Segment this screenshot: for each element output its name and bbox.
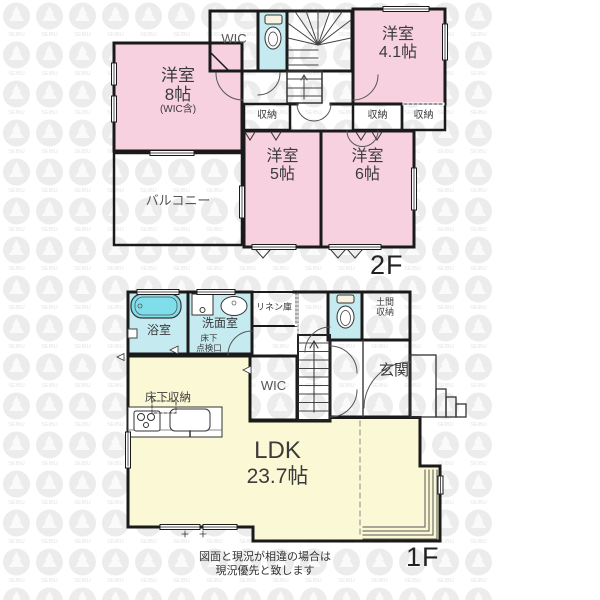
- watermark-logo: SEIBU: [462, 0, 495, 39]
- svg-text:SEIBU: SEIBU: [437, 578, 454, 584]
- watermark-logo: SEIBU: [462, 234, 495, 273]
- watermark-logo: SEIBU: [462, 585, 495, 600]
- watermark-logo: SEIBU: [330, 585, 363, 600]
- watermark-logo: SEIBU: [66, 351, 99, 390]
- watermark-logo: SEIBU: [462, 156, 495, 195]
- svg-text:SEIBU: SEIBU: [470, 110, 487, 116]
- wic-2f-label: WIC: [210, 32, 258, 47]
- closet-left-label: 収納: [244, 110, 290, 121]
- svg-text:SEIBU: SEIBU: [74, 344, 91, 350]
- watermark-logo: SEIBU: [0, 507, 33, 546]
- room-8jo-label: 洋室 8帖 (WIC含): [133, 66, 223, 115]
- svg-text:SEIBU: SEIBU: [74, 383, 91, 389]
- svg-text:SEIBU: SEIBU: [404, 266, 421, 272]
- svg-text:SEIBU: SEIBU: [8, 305, 25, 311]
- svg-text:SEIBU: SEIBU: [41, 344, 58, 350]
- watermark-logo: SEIBU: [0, 273, 33, 312]
- svg-text:SEIBU: SEIBU: [338, 266, 355, 272]
- svg-text:SEIBU: SEIBU: [8, 32, 25, 38]
- room-4-1jo-label: 洋室 4.1帖: [355, 26, 441, 62]
- watermark-logo: SEIBU: [66, 468, 99, 507]
- watermark-logo: SEIBU: [0, 0, 33, 39]
- svg-text:SEIBU: SEIBU: [8, 422, 25, 428]
- kitchen-counter: [128, 407, 222, 437]
- svg-text:SEIBU: SEIBU: [8, 578, 25, 584]
- wic-1f-label: WIC: [250, 379, 297, 394]
- svg-text:SEIBU: SEIBU: [74, 188, 91, 194]
- svg-text:SEIBU: SEIBU: [41, 461, 58, 467]
- watermark-logo: SEIBU: [132, 585, 165, 600]
- svg-text:SEIBU: SEIBU: [74, 71, 91, 77]
- stove-icon: [134, 411, 160, 431]
- floor-plan-1f: [110, 280, 475, 552]
- svg-text:SEIBU: SEIBU: [239, 266, 256, 272]
- watermark-logo: SEIBU: [0, 585, 33, 600]
- watermark-logo: SEIBU: [33, 585, 66, 600]
- watermark-logo: SEIBU: [66, 390, 99, 429]
- watermark-logo: SEIBU: [33, 312, 66, 351]
- svg-text:SEIBU: SEIBU: [74, 227, 91, 233]
- floor-2f-label: 2F: [370, 250, 404, 281]
- watermark-logo: SEIBU: [33, 351, 66, 390]
- svg-text:SEIBU: SEIBU: [41, 266, 58, 272]
- watermark-logo: SEIBU: [198, 585, 231, 600]
- svg-text:SEIBU: SEIBU: [41, 305, 58, 311]
- watermark-logo: SEIBU: [33, 78, 66, 117]
- svg-text:SEIBU: SEIBU: [272, 578, 289, 584]
- watermark-logo: SEIBU: [33, 273, 66, 312]
- svg-text:SEIBU: SEIBU: [74, 32, 91, 38]
- svg-text:SEIBU: SEIBU: [173, 266, 190, 272]
- svg-text:SEIBU: SEIBU: [140, 266, 157, 272]
- toilet-icon-1f: [337, 295, 354, 328]
- floorplan-image: SEIBUSEIBUSEIBUSEIBUSEIBUSEIBUSEIBUSEIBU…: [0, 0, 600, 600]
- watermark-logo: SEIBU: [33, 0, 66, 39]
- svg-text:SEIBU: SEIBU: [8, 110, 25, 116]
- watermark-logo: SEIBU: [396, 585, 429, 600]
- watermark-logo: SEIBU: [66, 195, 99, 234]
- watermark-logo: SEIBU: [99, 585, 132, 600]
- svg-text:SEIBU: SEIBU: [338, 578, 355, 584]
- watermark-logo: SEIBU: [0, 234, 33, 273]
- watermark-logo: SEIBU: [0, 195, 33, 234]
- watermark-logo: SEIBU: [66, 312, 99, 351]
- svg-text:SEIBU: SEIBU: [41, 110, 58, 116]
- svg-text:SEIBU: SEIBU: [470, 149, 487, 155]
- svg-text:SEIBU: SEIBU: [272, 266, 289, 272]
- svg-text:SEIBU: SEIBU: [305, 266, 322, 272]
- watermark-logo: SEIBU: [33, 156, 66, 195]
- watermark-logo: SEIBU: [66, 117, 99, 156]
- svg-text:SEIBU: SEIBU: [8, 500, 25, 506]
- watermark-logo: SEIBU: [66, 507, 99, 546]
- watermark-logo: SEIBU: [0, 156, 33, 195]
- room-5jo-label: 洋室 5帖: [244, 148, 321, 184]
- svg-text:SEIBU: SEIBU: [74, 266, 91, 272]
- svg-text:SEIBU: SEIBU: [470, 578, 487, 584]
- svg-text:SEIBU: SEIBU: [8, 149, 25, 155]
- watermark-logo: SEIBU: [66, 273, 99, 312]
- svg-text:SEIBU: SEIBU: [239, 578, 256, 584]
- balcony-label: バルコニー: [123, 194, 233, 209]
- svg-text:SEIBU: SEIBU: [8, 266, 25, 272]
- stair-treads-1f: [299, 341, 329, 412]
- watermark-logo: SEIBU: [33, 546, 66, 585]
- svg-text:SEIBU: SEIBU: [305, 578, 322, 584]
- svg-text:SEIBU: SEIBU: [8, 344, 25, 350]
- window-ticks: [182, 531, 206, 537]
- svg-text:SEIBU: SEIBU: [404, 578, 421, 584]
- entrance-label: 玄関: [364, 363, 424, 380]
- svg-text:SEIBU: SEIBU: [41, 149, 58, 155]
- watermark-logo: SEIBU: [66, 39, 99, 78]
- watermark-logo: SEIBU: [66, 546, 99, 585]
- closet-mid-label: 収納: [353, 110, 402, 121]
- watermark-logo: SEIBU: [0, 546, 33, 585]
- watermark-logo: SEIBU: [66, 585, 99, 600]
- svg-text:SEIBU: SEIBU: [74, 422, 91, 428]
- svg-text:SEIBU: SEIBU: [470, 188, 487, 194]
- bath-label: 浴室: [133, 324, 185, 337]
- watermark-logo: SEIBU: [165, 585, 198, 600]
- svg-text:SEIBU: SEIBU: [74, 461, 91, 467]
- basin-icon: [221, 297, 247, 316]
- svg-text:SEIBU: SEIBU: [470, 266, 487, 272]
- watermark-logo: SEIBU: [33, 468, 66, 507]
- svg-text:SEIBU: SEIBU: [41, 71, 58, 77]
- svg-text:SEIBU: SEIBU: [8, 188, 25, 194]
- watermark-logo: SEIBU: [0, 429, 33, 468]
- svg-text:SEIBU: SEIBU: [41, 578, 58, 584]
- svg-text:SEIBU: SEIBU: [206, 578, 223, 584]
- watermark-logo: SEIBU: [33, 507, 66, 546]
- watermark-logo: SEIBU: [0, 468, 33, 507]
- watermark-logo: SEIBU: [462, 78, 495, 117]
- svg-text:SEIBU: SEIBU: [74, 305, 91, 311]
- svg-text:SEIBU: SEIBU: [470, 32, 487, 38]
- toilet-icon-2f: [265, 15, 282, 49]
- watermark-logo: SEIBU: [297, 585, 330, 600]
- watermark-logo: SEIBU: [0, 39, 33, 78]
- watermark-logo: SEIBU: [462, 39, 495, 78]
- watermark-logo: SEIBU: [0, 78, 33, 117]
- watermark-logo: SEIBU: [462, 195, 495, 234]
- watermark-logo: SEIBU: [0, 312, 33, 351]
- watermark-logo: SEIBU: [33, 390, 66, 429]
- watermark-logo: SEIBU: [429, 585, 462, 600]
- svg-text:SEIBU: SEIBU: [470, 227, 487, 233]
- svg-text:SEIBU: SEIBU: [41, 32, 58, 38]
- svg-text:SEIBU: SEIBU: [437, 266, 454, 272]
- closet-right-label: 収納: [402, 110, 445, 121]
- svg-text:SEIBU: SEIBU: [206, 266, 223, 272]
- svg-text:SEIBU: SEIBU: [8, 71, 25, 77]
- svg-text:SEIBU: SEIBU: [8, 227, 25, 233]
- watermark-logo: SEIBU: [66, 78, 99, 117]
- svg-text:SEIBU: SEIBU: [8, 539, 25, 545]
- svg-text:SEIBU: SEIBU: [74, 539, 91, 545]
- svg-text:SEIBU: SEIBU: [41, 188, 58, 194]
- watermark-logo: SEIBU: [33, 195, 66, 234]
- svg-text:SEIBU: SEIBU: [173, 578, 190, 584]
- floor-1f-label: 1F: [406, 542, 440, 573]
- watermark-logo: SEIBU: [0, 390, 33, 429]
- doma-label: 土間 収納: [363, 297, 407, 317]
- svg-text:SEIBU: SEIBU: [41, 539, 58, 545]
- svg-text:SEIBU: SEIBU: [74, 149, 91, 155]
- svg-text:SEIBU: SEIBU: [74, 110, 91, 116]
- watermark-logo: SEIBU: [33, 117, 66, 156]
- svg-text:SEIBU: SEIBU: [74, 500, 91, 506]
- svg-text:SEIBU: SEIBU: [371, 578, 388, 584]
- watermark-logo: SEIBU: [33, 39, 66, 78]
- watermark-logo: SEIBU: [66, 0, 99, 39]
- underfloor-hatch-label: 床下 点検口: [188, 334, 230, 353]
- ldk-label: LDK 23.7帖: [195, 438, 360, 488]
- svg-text:SEIBU: SEIBU: [41, 422, 58, 428]
- watermark-logo: SEIBU: [66, 429, 99, 468]
- svg-text:SEIBU: SEIBU: [41, 227, 58, 233]
- svg-text:SEIBU: SEIBU: [8, 461, 25, 467]
- disclaimer-text: 図面と現況が相違の場合は 現況優先と致します: [160, 551, 370, 579]
- watermark-logo: SEIBU: [33, 429, 66, 468]
- watermark-logo: SEIBU: [33, 234, 66, 273]
- svg-text:SEIBU: SEIBU: [470, 71, 487, 77]
- watermark-logo: SEIBU: [231, 585, 264, 600]
- washer-pan-icon: [192, 294, 213, 315]
- svg-text:SEIBU: SEIBU: [140, 578, 157, 584]
- watermark-logo: SEIBU: [363, 585, 396, 600]
- watermark-logo: SEIBU: [66, 234, 99, 273]
- watermark-logo: SEIBU: [462, 117, 495, 156]
- stair-treads-2f: [288, 11, 351, 99]
- watermark-logo: SEIBU: [66, 156, 99, 195]
- watermark-logo: SEIBU: [0, 117, 33, 156]
- linen-label: リネン庫: [251, 302, 297, 312]
- underfloor-storage-label: 床下収納: [130, 392, 206, 405]
- room-6jo-label: 洋室 6帖: [321, 148, 414, 184]
- svg-text:SEIBU: SEIBU: [107, 266, 124, 272]
- svg-text:SEIBU: SEIBU: [41, 383, 58, 389]
- watermark-logo: SEIBU: [0, 351, 33, 390]
- washroom-label: 洗面室: [189, 317, 251, 330]
- svg-text:SEIBU: SEIBU: [8, 383, 25, 389]
- watermark-logo: SEIBU: [264, 585, 297, 600]
- svg-text:SEIBU: SEIBU: [41, 500, 58, 506]
- svg-text:SEIBU: SEIBU: [74, 578, 91, 584]
- svg-text:SEIBU: SEIBU: [107, 578, 124, 584]
